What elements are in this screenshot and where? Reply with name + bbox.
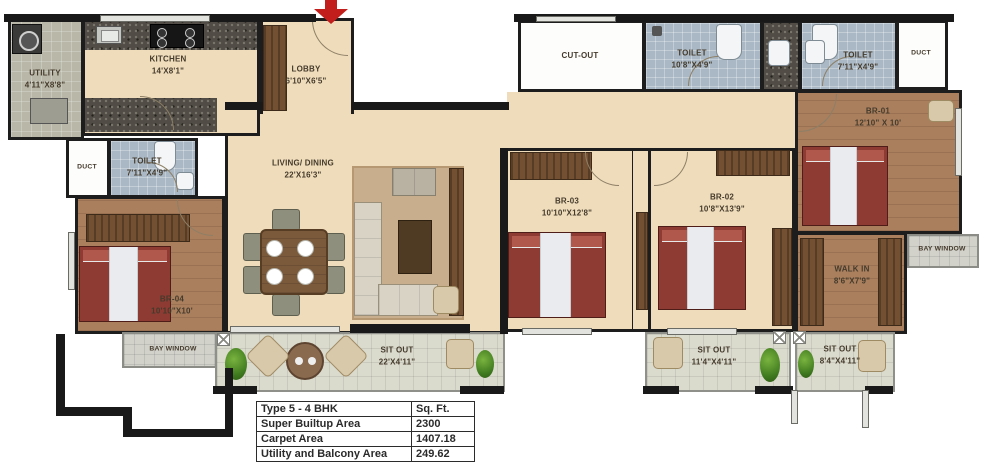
plant-icon [476,350,494,378]
wall-segment [256,14,316,22]
label-br01: BR-0112'10" X 10' [855,106,901,131]
area-table-row: Utility and Balcony Area 249.62 [257,447,475,462]
stove-icon [150,24,204,48]
br02-bench [716,150,790,176]
wall-segment [755,386,793,394]
balcony-side-rail [862,390,869,428]
br04-sofa [86,214,190,242]
sofa-chaise [378,284,438,316]
label-toilet-right: TOILET7'11"X4'9" [838,50,879,75]
sink-icon [176,172,194,190]
sitout-chair [858,340,886,372]
dining-table [260,229,328,295]
label-sitout-mid: SIT OUT11'4"X4'11" [692,345,737,370]
window [68,232,75,290]
bed-br03 [508,232,606,318]
shower-icon [652,26,662,36]
label-toilet-top: TOILET10'8"X4'9" [672,48,713,73]
br02-wardrobe [772,228,792,326]
plate-icon [297,268,314,285]
sitout-round-table [286,342,324,380]
label-br03: BR-0310'10"X12'8" [542,196,592,221]
wall-segment [213,386,257,394]
coffee-table [398,220,432,274]
utility-sink-icon [30,98,68,124]
floor-plan-canvas: UTILITY4'11"X8'8" KITCHEN14'X8'1" LOBBY6… [0,0,1000,470]
area-value: 2300 [412,417,475,432]
label-bay-window-left: BAY WINDOW [149,345,196,356]
corridor [507,92,795,150]
label-living-dining: LIVING/ DINING22'X16'3" [272,158,334,183]
pipe-marker-icon [217,333,230,346]
wall-segment [56,334,65,414]
dining-chair [272,209,300,231]
window [522,328,592,335]
area-table-type: Type 5 - 4 BHK [257,402,412,417]
area-table-row: Super Builtup Area 2300 [257,417,475,432]
label-utility: UTILITY4'11"X8'8" [25,68,66,93]
area-table: Type 5 - 4 BHK Sq. Ft. Super Builtup Are… [256,401,475,462]
entrance-arrow-icon [314,0,348,26]
plant-icon [760,348,780,382]
bed-br02 [658,226,746,310]
label-cutout: CUT-OUT [562,50,599,62]
label-lobby: LOBBY6'10"X6'5" [286,64,327,89]
label-sitout-main: SIT OUT22'X4'11" [379,345,416,370]
plate-icon [266,268,283,285]
area-value: 1407.18 [412,432,475,447]
wall-segment [123,429,233,437]
armchair [433,286,459,314]
window [230,326,340,333]
walkin-wardrobe-left [800,238,824,326]
window [955,108,962,176]
label-br02: BR-0210'8"X13'9" [699,192,745,217]
label-bay-window-right: BAY WINDOW [918,245,965,256]
pipe-marker-icon [773,331,786,344]
br03-bench [510,152,592,180]
br01-chair [928,100,954,122]
label-toilet-left: TOILET7'11"X4'9" [127,156,168,181]
wall-segment [56,407,132,416]
wall-segment [643,386,679,394]
window [536,16,616,22]
sink-icon [805,40,825,64]
wall-segment [225,102,263,110]
area-value: 249.62 [412,447,475,462]
dining-chair [272,294,300,316]
area-label: Super Builtup Area [257,417,412,432]
wall-segment [225,368,233,434]
area-table-header-row: Type 5 - 4 BHK Sq. Ft. [257,402,475,417]
area-label: Carpet Area [257,432,412,447]
area-table-unit: Sq. Ft. [412,402,475,417]
dining-chair [325,266,345,294]
area-label: Utility and Balcony Area [257,447,412,462]
label-duct-right: DUCT [911,49,931,60]
lobby-cabinet [263,25,287,111]
wall-segment [352,102,509,110]
area-table-row: Carpet Area 1407.18 [257,432,475,447]
sitout-chair [446,339,474,369]
balcony-side-rail [791,390,798,424]
loveseat [392,168,436,196]
pipe-marker-icon [793,331,806,344]
dining-chair [325,233,345,261]
sitout-chair [653,337,683,369]
window [667,328,737,335]
closet-wardrobe [636,212,648,310]
kitchen-sink-icon [96,26,122,44]
wall-segment [500,148,508,334]
label-sitout-right: SIT OUT8'4"X4'11" [820,344,861,369]
bed-br01 [802,146,888,226]
toilet-wc-icon [716,24,742,60]
washing-machine-icon [12,24,42,54]
wall-segment [350,324,470,333]
wall-segment [865,386,893,394]
label-kitchen: KITCHEN14'X8'1" [150,54,187,79]
wall-segment [460,386,504,394]
sink-icon [768,40,790,66]
label-br04: BR-0410'10"X10' [151,294,193,319]
label-walk-in: WALK IN8'6"X7'9" [834,264,870,289]
walkin-wardrobe-right [878,238,902,326]
label-duct-left: DUCT [77,163,97,174]
plate-icon [266,240,283,257]
window [100,15,210,22]
plate-icon [297,240,314,257]
plant-icon [798,350,814,378]
